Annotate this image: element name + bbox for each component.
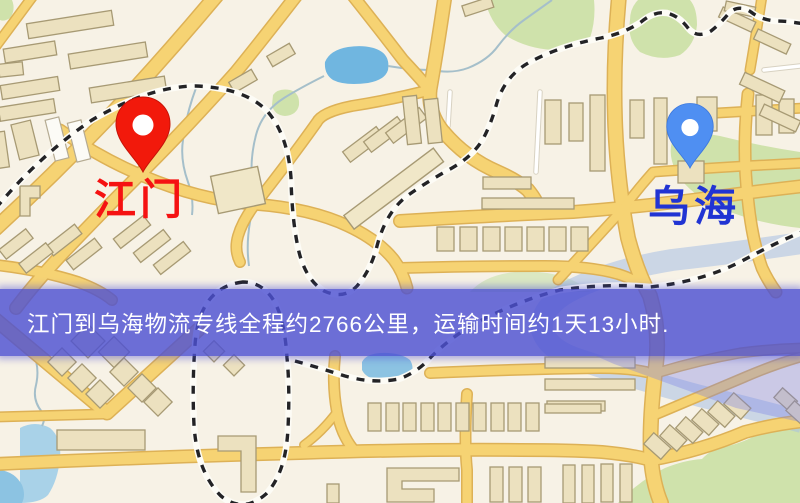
map-canvas: 江门 乌海 江门到乌海物流专线全程约2766公里，运输时间约1天13小时. [0, 0, 800, 503]
pin-hole [133, 115, 154, 136]
pin-hole [681, 119, 698, 136]
origin-label: 江门 [94, 177, 186, 224]
route-info-banner: 江门到乌海物流专线全程约2766公里，运输时间约1天13小时. [0, 289, 800, 356]
route-info-text: 江门到乌海物流专线全程约2766公里，运输时间约1天13小时. [27, 307, 669, 339]
destination-label: 乌海 [648, 184, 740, 231]
